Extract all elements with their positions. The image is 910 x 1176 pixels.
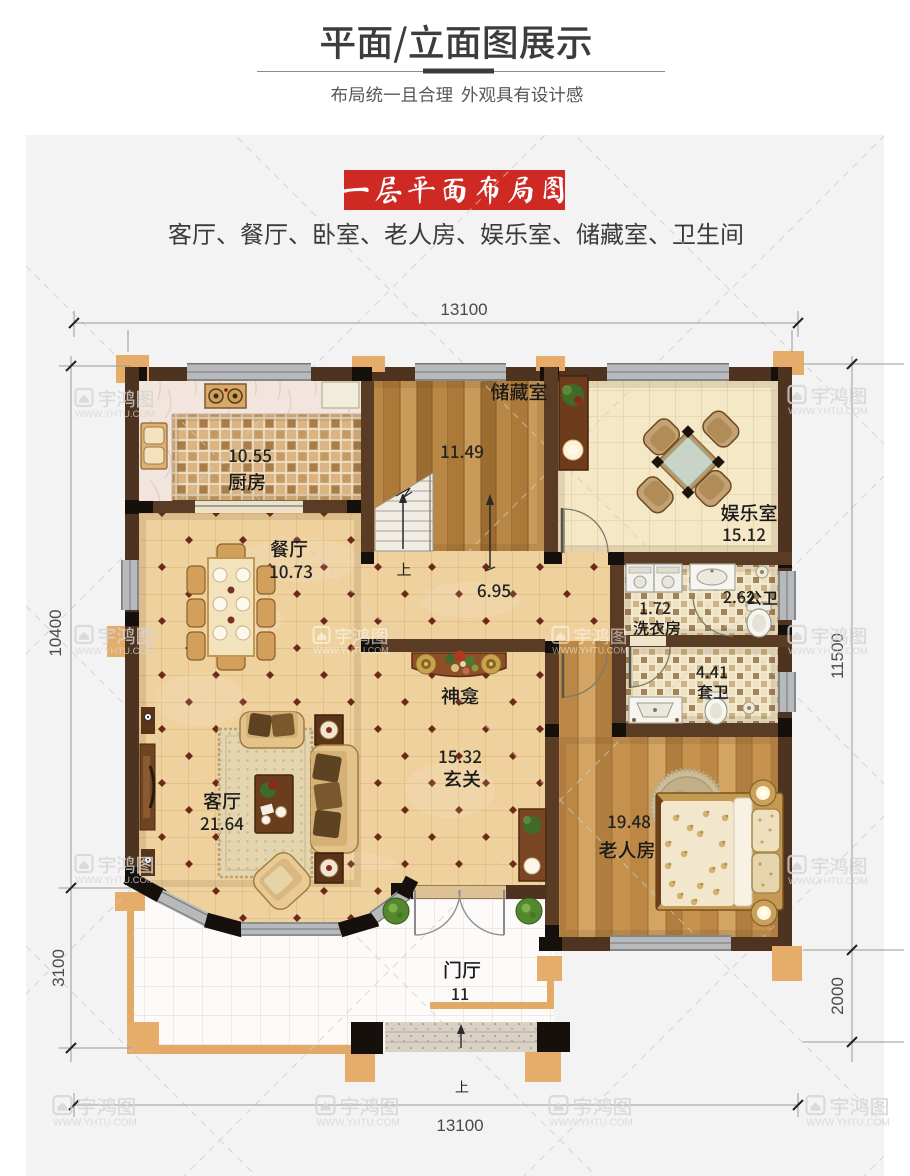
svg-text:WWW.YHTU.COM: WWW.YHTU.COM [788,876,868,887]
svg-text:WWW.YHTU.COM: WWW.YHTU.COM [806,1118,890,1129]
svg-text:WWW.YHTU.COM: WWW.YHTU.COM [549,1118,633,1129]
svg-text:13100: 13100 [440,300,487,319]
svg-text:WWW.YHTU.COM: WWW.YHTU.COM [552,645,628,655]
svg-text:WWW.YHTU.COM: WWW.YHTU.COM [75,875,155,886]
svg-text:WWW.YHTU.COM: WWW.YHTU.COM [75,409,155,420]
svg-text:WWW.YHTU.COM: WWW.YHTU.COM [53,1118,137,1129]
svg-text:WWW.YHTU.COM: WWW.YHTU.COM [316,1118,400,1129]
svg-text:WWW.YHTU.COM: WWW.YHTU.COM [788,646,868,657]
svg-text:3100: 3100 [49,949,68,987]
svg-text:WWW.YHTU.COM: WWW.YHTU.COM [313,645,389,655]
svg-text:WWW.YHTU.COM: WWW.YHTU.COM [75,646,155,657]
svg-text:WWW.YHTU.COM: WWW.YHTU.COM [788,406,868,417]
svg-text:13100: 13100 [436,1116,483,1135]
svg-text:10400: 10400 [46,609,65,656]
svg-text:2000: 2000 [828,977,847,1015]
